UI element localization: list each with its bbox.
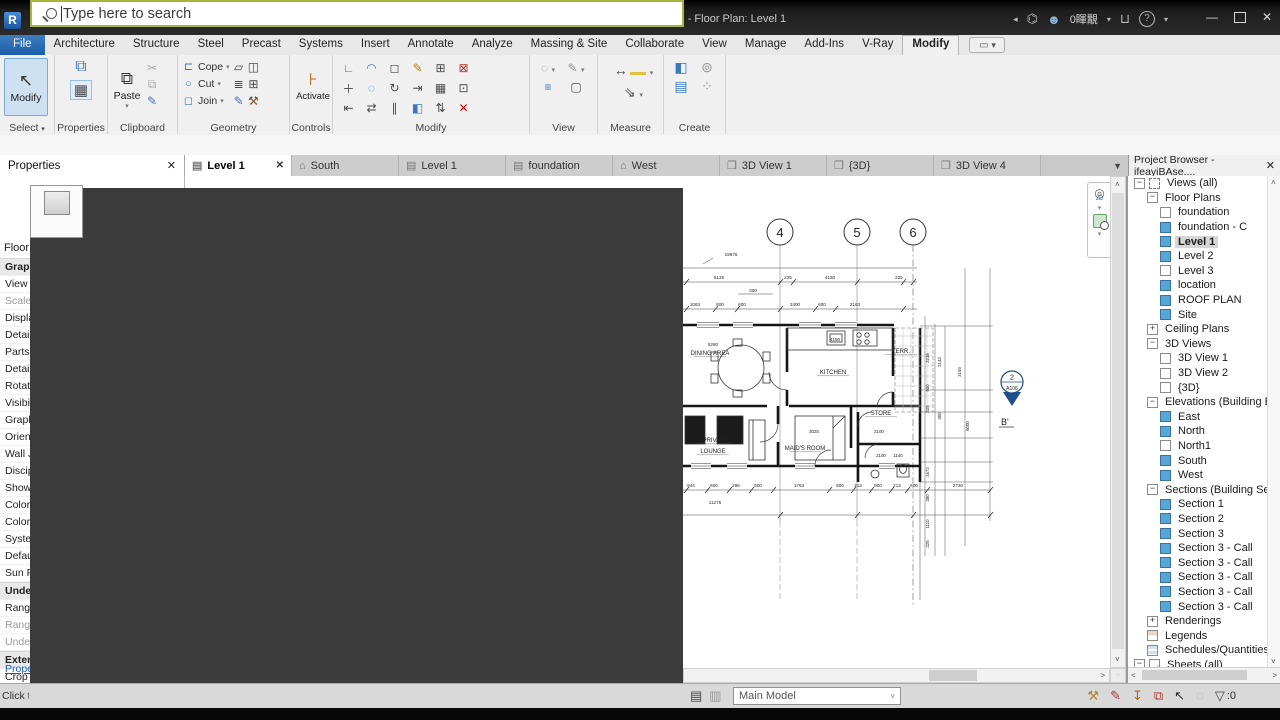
view-icon-legend bbox=[1147, 630, 1158, 641]
project-browser-tree: −Views (all)−Floor Plansfoundationfounda… bbox=[1128, 176, 1268, 668]
tree-item-east[interactable]: East bbox=[1128, 410, 1268, 425]
modify-tool-icon-5[interactable]: ⊠ bbox=[458, 61, 468, 75]
grid-label-5: 5 bbox=[853, 225, 860, 240]
tree-item-section-3[interactable]: Section 3 bbox=[1128, 526, 1268, 541]
cut-to-clipboard-icon[interactable]: ✂ bbox=[147, 61, 157, 75]
cursor-arrow-icon: ↖ bbox=[19, 71, 33, 91]
dimension-text: 213 bbox=[893, 483, 901, 488]
tree-item-label: Views (all) bbox=[1164, 177, 1221, 189]
tree-item-label: {3D} bbox=[1175, 382, 1202, 394]
browser-scroll-right-icon[interactable]: > bbox=[1272, 671, 1277, 680]
dimension-text: 300 bbox=[749, 288, 757, 293]
dimension-text: 600 bbox=[716, 302, 724, 307]
worksets-status-icon[interactable]: ⚒ bbox=[1087, 688, 1099, 704]
expand-icon[interactable]: + bbox=[1147, 616, 1158, 627]
view-tab-south[interactable]: ⌂South bbox=[292, 155, 399, 176]
dimension-text: 600 bbox=[754, 483, 762, 488]
tree-item-3d-view-1[interactable]: 3D View 1 bbox=[1128, 351, 1268, 366]
tree-item-label: Site bbox=[1175, 309, 1200, 321]
create-parts-icon[interactable]: ◧ bbox=[674, 59, 687, 76]
view-tab-foundation[interactable]: ▤foundation bbox=[506, 155, 613, 176]
dimension-text: 500 bbox=[925, 384, 930, 392]
tree-item-label: Section 3 bbox=[1175, 528, 1227, 540]
panel-properties: ⧉ ▦ Properties bbox=[55, 55, 108, 134]
type-preview-icon bbox=[44, 191, 70, 215]
grid-label-6: 6 bbox=[909, 225, 916, 240]
paste-button[interactable]: ⧉ Paste ▾ bbox=[112, 58, 142, 121]
ribbon-tab-annotate[interactable]: Annotate bbox=[399, 35, 463, 55]
scroll-down-icon[interactable]: ˅ bbox=[1115, 655, 1120, 664]
view-tab-west[interactable]: ⌂West bbox=[613, 155, 720, 176]
modify-tools-grid: ∟◠◻✎⊞⊠＋◌↻⇥▦⊡⇤⇄∥◧⇅✕ bbox=[337, 58, 525, 118]
ribbon-tab-add-ins[interactable]: Add-Ins bbox=[795, 35, 853, 55]
ribbon-tab-architecture[interactable]: Architecture bbox=[45, 35, 124, 55]
demolish-icon[interactable]: ✎ bbox=[234, 94, 244, 108]
dim-ticks-top bbox=[684, 279, 916, 312]
filter-icon: ▽ bbox=[1215, 688, 1225, 704]
view-icon-white bbox=[1160, 207, 1171, 218]
ribbon-tab-massing-site[interactable]: Massing & Site bbox=[522, 35, 617, 55]
beam-coping-icon[interactable]: ▱ bbox=[234, 60, 244, 74]
activate-pin-icon: ⊦ bbox=[309, 70, 318, 90]
threed-view-icon: ❒ bbox=[941, 159, 951, 172]
cope-button[interactable]: ⊏Cope▾ bbox=[182, 58, 230, 75]
panel-clipboard: ⧉ Paste ▾ ✂ ⧉ ✎ Clipboard bbox=[108, 55, 178, 134]
modify-tool-icon-0[interactable]: ∟ bbox=[343, 61, 355, 75]
collapse-icon[interactable]: − bbox=[1147, 192, 1158, 203]
view-icon-blue bbox=[1160, 528, 1171, 539]
exclude-options-icon[interactable]: ✎ bbox=[1110, 688, 1121, 704]
tree-item-label: North bbox=[1175, 425, 1208, 437]
type-selector[interactable] bbox=[30, 185, 83, 238]
help-caret-icon[interactable]: ▾ bbox=[1164, 15, 1168, 24]
browser-vertical-scrollbar[interactable]: ˄ ˅ bbox=[1267, 176, 1280, 668]
dimension-text: 2730 bbox=[953, 483, 964, 488]
dimension-text: 225 bbox=[925, 405, 930, 413]
close-button[interactable]: ✕ bbox=[1262, 10, 1272, 24]
dimension-text: 600 bbox=[738, 302, 746, 307]
panel-label-modify: Modify bbox=[333, 122, 529, 134]
unjoin-icon[interactable]: ◫ bbox=[248, 60, 259, 74]
view-icon-blue bbox=[1160, 280, 1171, 291]
browser-horizontal-scrollbar[interactable]: < > bbox=[1128, 667, 1280, 683]
tree-item-foundation-c[interactable]: foundation - C bbox=[1128, 220, 1268, 235]
tree-item-label: Renderings bbox=[1162, 615, 1224, 627]
view-tab-label: Level 1 bbox=[421, 160, 456, 172]
view-icon-white bbox=[1160, 265, 1171, 276]
view-icon-blue bbox=[1160, 426, 1171, 437]
tree-item-label: 3D View 1 bbox=[1175, 352, 1231, 364]
panel-label-properties: Properties bbox=[55, 122, 107, 134]
text-caret bbox=[61, 6, 62, 22]
tree-item-roof-plan[interactable]: ROOF PLAN bbox=[1128, 293, 1268, 308]
panel-label-select[interactable]: Select ▾ bbox=[0, 122, 54, 134]
modify-tool-icon-1[interactable]: ◠ bbox=[366, 61, 376, 75]
tree-item-label: Section 3 - Call bbox=[1175, 557, 1256, 569]
create-similar-icon[interactable]: ⁘ bbox=[701, 78, 713, 95]
view-tab-level-1[interactable]: ▤Level 1 bbox=[399, 155, 506, 176]
tree-item-legends[interactable]: Legends bbox=[1128, 628, 1268, 643]
revit-window: R▣▱◫⟳▾↶▾↷▾▤▥⊶↔▾╱◎A◧▾◇≣⊠❏▾▾ Autodesk Revi… bbox=[0, 0, 1280, 720]
create-assembly-icon[interactable]: ⊚ bbox=[701, 59, 713, 76]
project-browser-title: Project Browser - ifeayiBAse.... bbox=[1134, 154, 1266, 178]
panel-label-clipboard: Clipboard bbox=[108, 122, 177, 134]
view-tab-3d-view-4[interactable]: ❒3D View 4 bbox=[934, 155, 1041, 176]
tree-item-ceiling-plans[interactable]: +Ceiling Plans bbox=[1128, 322, 1268, 337]
hide-elements-icon[interactable]: ◌ ▾ bbox=[534, 61, 562, 75]
help-icon[interactable]: ? bbox=[1139, 11, 1155, 27]
type-properties-icon[interactable]: ▦ bbox=[70, 80, 92, 100]
grid-label-4: 4 bbox=[776, 225, 783, 240]
tree-item-section-1[interactable]: Section 1 bbox=[1128, 497, 1268, 512]
ribbon-tab-modify[interactable]: Modify bbox=[902, 35, 959, 55]
tree-item-label: Section 2 bbox=[1175, 513, 1227, 525]
vertical-scrollbar[interactable]: ˄ ˅ bbox=[1110, 176, 1126, 668]
tree-item-label: Section 3 - Call bbox=[1175, 542, 1256, 554]
copy-to-clipboard-icon[interactable]: ⧉ bbox=[147, 77, 157, 92]
tree-item-sections-building-sec[interactable]: −Sections (Building Sec bbox=[1128, 482, 1268, 497]
design-options-icon[interactable]: ▥ bbox=[709, 688, 721, 704]
view-icon-white bbox=[1160, 382, 1171, 393]
view-icon-blue bbox=[1160, 222, 1171, 233]
zoom-region-icon[interactable] bbox=[1093, 214, 1107, 228]
tree-item-label: ROOF PLAN bbox=[1175, 294, 1245, 306]
view-tabs-overflow-icon[interactable]: ▼ bbox=[1107, 155, 1128, 176]
dimension-text: 300 bbox=[937, 412, 942, 420]
section-tag: B' bbox=[1001, 417, 1009, 427]
view-icon-blue bbox=[1160, 470, 1171, 481]
dimension-text: 19675 bbox=[725, 252, 738, 257]
collapse-icon[interactable]: − bbox=[1147, 397, 1158, 408]
modify-tool-icon-6[interactable]: ＋ bbox=[342, 80, 354, 97]
browser-scroll-up-icon[interactable]: ˄ bbox=[1271, 178, 1276, 187]
tree-item-label: foundation - C bbox=[1175, 221, 1250, 233]
status-hint: Click to select bbox=[2, 690, 29, 702]
search-binoculars-icon[interactable]: ⌬ bbox=[1027, 11, 1038, 27]
tree-item-north1[interactable]: North1 bbox=[1128, 439, 1268, 454]
dimension-text: 5125 bbox=[714, 275, 725, 280]
right-dims bbox=[920, 268, 993, 556]
browser-scroll-down-icon[interactable]: ˅ bbox=[1271, 657, 1276, 666]
dimension-text: 2100 bbox=[876, 453, 886, 458]
cut-geometry-button[interactable]: ○Cut▾ bbox=[182, 75, 230, 92]
paste-icon: ⧉ bbox=[121, 69, 133, 89]
tree-item-views-all-[interactable]: −Views (all) bbox=[1128, 176, 1268, 191]
tree-item-level-2[interactable]: Level 2 bbox=[1128, 249, 1268, 264]
dimension-text: 1140 bbox=[893, 453, 903, 458]
ribbon-tab-steel[interactable]: Steel bbox=[189, 35, 233, 55]
floor-plan-icon: ▤ bbox=[406, 159, 416, 172]
room-label: DINING AREA bbox=[691, 351, 730, 357]
windows-search-box[interactable]: Type here to search bbox=[30, 0, 684, 27]
properties-title: Properties bbox=[8, 160, 60, 172]
tree-item-level-3[interactable]: Level 3 bbox=[1128, 264, 1268, 279]
section-number: 2 bbox=[1010, 375, 1014, 382]
taskbar-strip bbox=[0, 708, 1280, 720]
view-icon-blue bbox=[1160, 499, 1171, 510]
store-cart-icon[interactable]: ⊔ bbox=[1120, 11, 1130, 27]
modify-tool-icon-15[interactable]: ◧ bbox=[412, 101, 423, 115]
modify-tool-icon-12[interactable]: ⇤ bbox=[343, 101, 353, 115]
collapse-left-icon[interactable]: ◂ bbox=[1013, 14, 1018, 25]
tree-item-label: foundation bbox=[1175, 206, 1232, 218]
split-face-icon[interactable]: ⊞ bbox=[248, 77, 259, 91]
tree-item-label: Section 3 - Call bbox=[1175, 586, 1256, 598]
dimension-text: 1763 bbox=[794, 483, 805, 488]
dimension-text: 900 bbox=[874, 483, 882, 488]
dimension-text: 3025 bbox=[809, 429, 819, 434]
measure-between-refs-icon[interactable]: ↔ ▾ bbox=[608, 62, 659, 78]
titlebar-right-cluster: ◂ ⌬ ☻ 0睴覯 ▾ ⊔ ? ▾ bbox=[1013, 11, 1168, 27]
tree-item-label: Sections (Building Sec bbox=[1162, 484, 1268, 496]
tree-item-section-3-call[interactable]: Section 3 - Call bbox=[1128, 555, 1268, 570]
tree-item-level-1[interactable]: Level 1 bbox=[1128, 234, 1268, 249]
resize-grip[interactable]: ⁘ bbox=[1110, 668, 1126, 683]
create-group-icon[interactable]: ▤ bbox=[674, 78, 687, 95]
view-tab-bar: Properties ✕ ▤Level 1✕⌂South▤Level 1▤fou… bbox=[0, 155, 1280, 176]
properties-palette-icon[interactable]: ⧉ bbox=[75, 58, 86, 76]
modify-context-chip[interactable]: ▭▾ bbox=[969, 37, 1005, 53]
modify-tool-icon-11[interactable]: ⊡ bbox=[458, 81, 468, 95]
expand-icon[interactable]: + bbox=[1147, 324, 1158, 335]
view-icon-white bbox=[1160, 353, 1171, 364]
ribbon-tab-structure[interactable]: Structure bbox=[124, 35, 189, 55]
tree-item-label: 3D Views bbox=[1162, 338, 1214, 350]
tree-item-label: Floor Plans bbox=[1162, 192, 1224, 204]
tree-item-section-3-call[interactable]: Section 3 - Call bbox=[1128, 585, 1268, 600]
view-icon-blue bbox=[1160, 557, 1171, 568]
dimension-text: 2400 bbox=[790, 302, 801, 307]
ribbon-tab-insert[interactable]: Insert bbox=[352, 35, 399, 55]
tree-item-north[interactable]: North bbox=[1128, 424, 1268, 439]
select-caret-icon: ˅ bbox=[890, 692, 895, 701]
elevation-icon: ⌂ bbox=[620, 160, 627, 172]
dimension-text: 225 bbox=[925, 540, 930, 548]
room-label: KITCHEN bbox=[820, 370, 846, 376]
tree-item-label: Level 2 bbox=[1175, 250, 1216, 262]
background-processes-icon[interactable]: ◌ bbox=[1196, 688, 1204, 704]
view-icon-blue bbox=[1160, 309, 1171, 320]
signed-in-user[interactable]: 0睴覯 bbox=[1070, 11, 1098, 27]
ribbon-gap bbox=[0, 135, 1280, 155]
room-label: MAID'S ROOM bbox=[785, 446, 825, 452]
tree-item-section-3-call[interactable]: Section 3 - Call bbox=[1128, 541, 1268, 556]
tree-item-label: Elevations (Building E bbox=[1162, 396, 1268, 408]
grid-bubbles bbox=[767, 219, 926, 245]
modify-tool-icon-9[interactable]: ⇥ bbox=[412, 81, 422, 95]
active-design-option-value: Main Model bbox=[739, 690, 796, 702]
manage-links-icon[interactable]: ⧉ bbox=[1154, 688, 1163, 704]
cut-profile-icon[interactable]: ▢ bbox=[562, 80, 590, 94]
tree-item-renderings[interactable]: +Renderings bbox=[1128, 614, 1268, 629]
user-caret-icon[interactable]: ▾ bbox=[1107, 15, 1111, 24]
modify-tool-icon-4[interactable]: ⊞ bbox=[435, 61, 445, 75]
dimension-text: 4150 bbox=[830, 337, 841, 342]
scroll-up-icon[interactable]: ˄ bbox=[1115, 180, 1120, 189]
tree-item-schedules-quantities-[interactable]: Schedules/Quantities ( bbox=[1128, 643, 1268, 658]
tree-item-west[interactable]: West bbox=[1128, 468, 1268, 483]
view-icon-blue bbox=[1160, 295, 1171, 306]
tree-item-section-3-call[interactable]: Section 3 - Call bbox=[1128, 570, 1268, 585]
project-browser: −Views (all)−Floor Plansfoundationfounda… bbox=[1126, 176, 1280, 683]
section-sheet: A106 bbox=[1006, 386, 1018, 392]
view-icon-white bbox=[1160, 440, 1171, 451]
dimension-text: 350 bbox=[925, 494, 930, 502]
view-icon-blue bbox=[1160, 251, 1171, 262]
tree-item--3d-[interactable]: {3D} bbox=[1128, 380, 1268, 395]
tree-item-label: South bbox=[1175, 455, 1210, 467]
tree-item-label: 3D View 2 bbox=[1175, 367, 1231, 379]
tree-item-label: Section 3 - Call bbox=[1175, 601, 1256, 613]
tree-item-label: Section 3 - Call bbox=[1175, 571, 1256, 583]
match-type-icon[interactable]: ✎ bbox=[147, 94, 157, 108]
dimension-text: 944 bbox=[687, 483, 695, 488]
activate-controls-button[interactable]: ⊦ Activate bbox=[294, 58, 332, 114]
tree-item-label: Schedules/Quantities ( bbox=[1162, 644, 1268, 656]
floor-plan-icon: ▤ bbox=[192, 159, 202, 172]
properties-palette-header: Properties ✕ bbox=[0, 155, 185, 176]
minimize-button[interactable]: — bbox=[1206, 10, 1218, 24]
panel-label-geometry: Geometry bbox=[178, 122, 289, 134]
ribbon-tab-collaborate[interactable]: Collaborate bbox=[616, 35, 693, 55]
modify-tool-icon-2[interactable]: ◻ bbox=[390, 61, 400, 75]
view-tab-3d-view-1[interactable]: ❒3D View 1 bbox=[720, 155, 827, 176]
panel-label-measure: Measure bbox=[598, 122, 663, 134]
horizontal-scrollbar[interactable]: > bbox=[683, 668, 1110, 683]
modify-tool-icon-3[interactable]: ✎ bbox=[412, 61, 422, 75]
select-toggle-icon[interactable]: ↖ bbox=[1174, 688, 1185, 704]
view-tab-close-icon[interactable]: ✕ bbox=[276, 160, 284, 171]
walls bbox=[683, 325, 920, 482]
tree-item-location[interactable]: location bbox=[1128, 278, 1268, 293]
restore-button[interactable] bbox=[1234, 12, 1246, 23]
scroll-right-icon[interactable]: > bbox=[1100, 671, 1105, 680]
dark-overlay bbox=[30, 188, 683, 683]
dimension-text: 1063 bbox=[690, 302, 701, 307]
modify-tool-icon-7[interactable]: ◌ bbox=[368, 81, 375, 95]
ribbon-tab-manage[interactable]: Manage bbox=[736, 35, 796, 55]
wall-layers-icon[interactable]: ≣ bbox=[234, 77, 244, 91]
elevation-icon: ⌂ bbox=[299, 160, 306, 172]
tree-item-section-3-call[interactable]: Section 3 - Call bbox=[1128, 599, 1268, 614]
collapse-icon[interactable]: − bbox=[1134, 178, 1145, 189]
view-icon-schedule bbox=[1147, 645, 1158, 656]
modify-tool-icon-8[interactable]: ↻ bbox=[389, 81, 399, 95]
tree-item-3d-views[interactable]: −3D Views bbox=[1128, 337, 1268, 352]
dimension-text: 600 bbox=[710, 483, 718, 488]
tree-item-elevations-building-e[interactable]: −Elevations (Building E bbox=[1128, 395, 1268, 410]
view-tab-level-1[interactable]: ▤Level 1✕ bbox=[185, 155, 292, 176]
panel-label-view: View bbox=[530, 122, 597, 134]
panel-controls: ⊦ Activate Controls bbox=[290, 55, 333, 134]
ribbon: ↖ Modify Select ▾ ⧉ ▦ Properties ⧉ Paste… bbox=[0, 55, 1280, 136]
view-icon-blue bbox=[1160, 455, 1171, 466]
view-icon-blue bbox=[1160, 601, 1171, 612]
room-label: STORE bbox=[871, 411, 892, 417]
ribbon-tab-v-ray[interactable]: V-Ray bbox=[853, 35, 902, 55]
panel-select: ↖ Modify Select ▾ bbox=[0, 55, 55, 134]
modify-tool-icon-14[interactable]: ∥ bbox=[392, 101, 398, 115]
view-tab-label: {3D} bbox=[849, 160, 870, 172]
view-tab-label: South bbox=[311, 160, 340, 172]
override-graphics-icon[interactable]: ✎ ▾ bbox=[562, 61, 590, 75]
tree-item-floor-plans[interactable]: −Floor Plans bbox=[1128, 191, 1268, 206]
linework-icon[interactable]: ≡ bbox=[534, 80, 562, 94]
modify-tool-button[interactable]: ↖ Modify bbox=[4, 58, 48, 116]
measure-along-element-icon[interactable]: ⇘ ▾ bbox=[608, 84, 659, 101]
view-tab-label: 3D View 4 bbox=[956, 160, 1006, 172]
ribbon-tab-view[interactable]: View bbox=[693, 35, 736, 55]
ribbon-tab-file[interactable]: File bbox=[0, 35, 45, 55]
ribbon-tab-analyze[interactable]: Analyze bbox=[463, 35, 522, 55]
dimension-text: 2100 bbox=[874, 429, 884, 434]
tree-item-label: location bbox=[1175, 279, 1219, 291]
tree-item-label: Section 1 bbox=[1175, 498, 1227, 510]
tree-item-label: Legends bbox=[1162, 630, 1210, 642]
view-tabs: ▤Level 1✕⌂South▤Level 1▤foundation⌂West❒… bbox=[185, 155, 1041, 176]
wheel-caret-icon[interactable]: ▾ bbox=[1098, 204, 1102, 212]
view-tab--3d-[interactable]: ❒{3D} bbox=[827, 155, 934, 176]
dimension-text: 4150 bbox=[825, 275, 836, 280]
collapse-icon[interactable]: − bbox=[1147, 338, 1158, 349]
dimension-text: 213 bbox=[854, 483, 862, 488]
join-geometry-button[interactable]: ◻Join▾ bbox=[182, 92, 230, 109]
browser-scroll-left-icon[interactable]: < bbox=[1131, 671, 1136, 680]
app-logo-icon[interactable]: R bbox=[4, 12, 21, 29]
modify-tool-icon-16[interactable]: ⇅ bbox=[435, 101, 445, 115]
project-browser-header: Project Browser - ifeayiBAse.... ✕ bbox=[1128, 155, 1280, 176]
press-drag-icon[interactable]: ↧ bbox=[1132, 688, 1143, 704]
project-browser-close-icon[interactable]: ✕ bbox=[1266, 159, 1275, 172]
tree-item-foundation[interactable]: foundation bbox=[1128, 205, 1268, 220]
properties-close-icon[interactable]: ✕ bbox=[167, 159, 176, 172]
view-icon-views bbox=[1149, 178, 1160, 189]
collapse-icon[interactable]: − bbox=[1147, 484, 1158, 495]
dimension-text: 296 bbox=[732, 483, 740, 488]
view-icon-blue bbox=[1160, 543, 1171, 554]
ribbon-tab-systems[interactable]: Systems bbox=[290, 35, 352, 55]
tree-item-south[interactable]: South bbox=[1128, 453, 1268, 468]
window-controls: — ✕ bbox=[1206, 10, 1272, 24]
status-right-icons: ⚒✎↧⧉↖◌ ▽ :0 bbox=[1087, 688, 1236, 704]
modify-tool-icon-13[interactable]: ⇄ bbox=[366, 101, 376, 115]
hammer-icon[interactable]: ⚒ bbox=[248, 94, 259, 108]
tree-item-3d-view-2[interactable]: 3D View 2 bbox=[1128, 366, 1268, 381]
tree-item-label: Ceiling Plans bbox=[1162, 323, 1232, 335]
view-icon-blue bbox=[1160, 411, 1171, 422]
section-marker[interactable]: 2 A106 B' bbox=[999, 371, 1023, 427]
zoom-caret-icon[interactable]: ▾ bbox=[1098, 230, 1102, 238]
view-tab-label: West bbox=[632, 160, 657, 172]
ribbon-tab-bar: FileArchitectureStructureSteelPrecastSys… bbox=[0, 35, 1280, 55]
tree-item-site[interactable]: Site bbox=[1128, 307, 1268, 322]
view-icon-blue bbox=[1160, 236, 1171, 247]
tree-item-label: West bbox=[1175, 469, 1206, 481]
modify-tool-icon-10[interactable]: ▦ bbox=[435, 81, 446, 95]
modify-tool-icon-17[interactable]: ✕ bbox=[458, 101, 468, 115]
worksets-dialog-icon[interactable]: ▤ bbox=[690, 688, 702, 704]
panel-label-create: Create bbox=[664, 122, 725, 134]
tree-item-section-2[interactable]: Section 2 bbox=[1128, 512, 1268, 527]
floor-plan-drawing[interactable]: 4 5 6 bbox=[683, 176, 1110, 668]
tree-item-label: Level 3 bbox=[1175, 265, 1216, 277]
panel-label-controls: Controls bbox=[290, 122, 332, 134]
tree-item-label: Level 1 bbox=[1175, 236, 1218, 248]
terrace-hatch bbox=[895, 328, 933, 412]
filter-button[interactable]: ▽ :0 bbox=[1215, 688, 1236, 704]
active-design-option-select[interactable]: Main Model ˅ bbox=[733, 687, 901, 705]
ribbon-tab-precast[interactable]: Precast bbox=[233, 35, 290, 55]
